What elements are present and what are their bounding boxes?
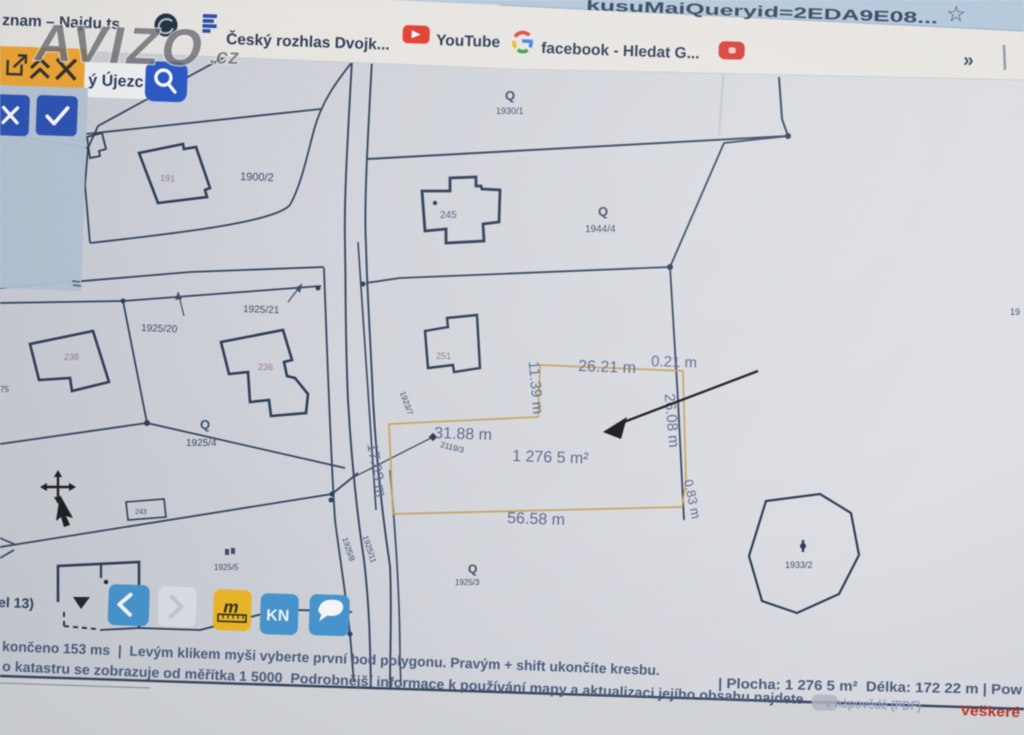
svg-text:AVIZO: AVIZO (29, 15, 211, 78)
svg-text:.cz: .cz (207, 43, 242, 69)
